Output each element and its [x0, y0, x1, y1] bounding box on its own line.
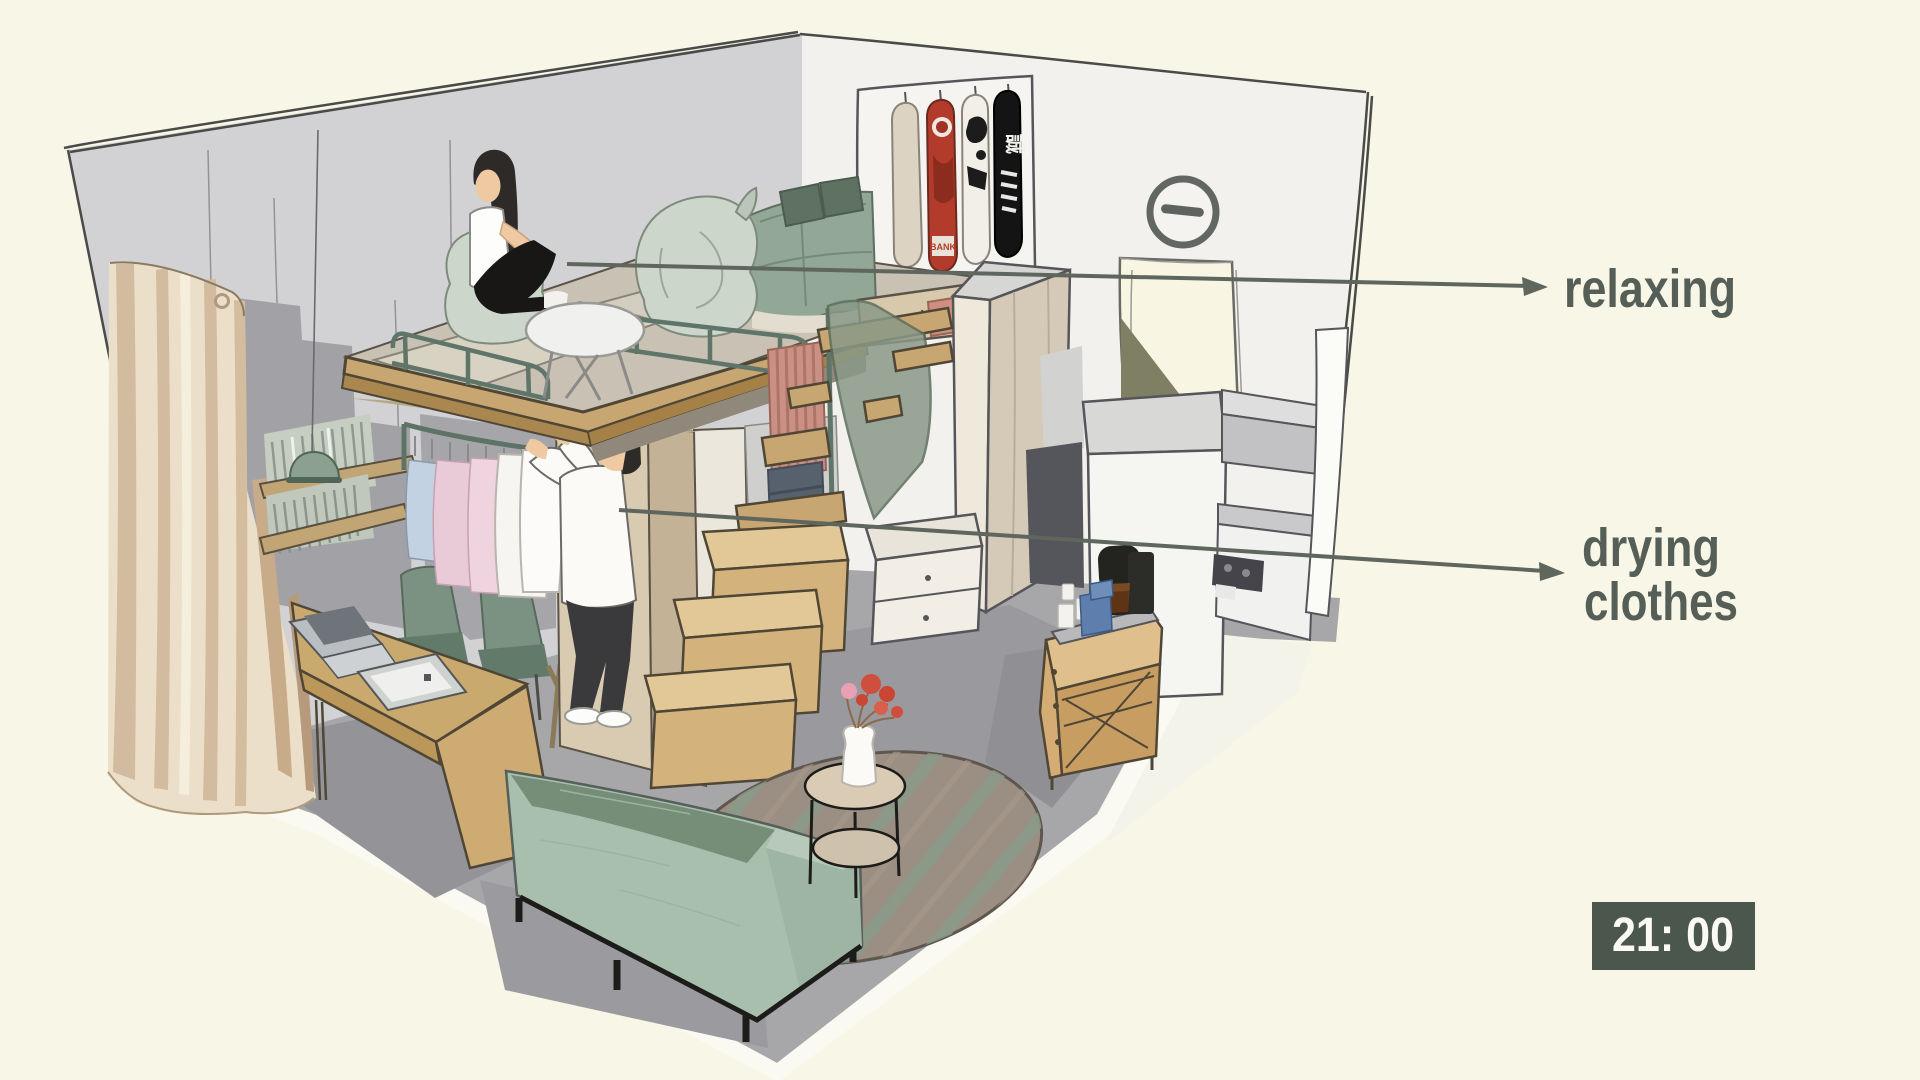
svg-text:clothes: clothes [1584, 572, 1738, 632]
svg-text:BANK: BANK [930, 242, 956, 252]
svg-text:21: 00: 21: 00 [1612, 909, 1734, 962]
svg-text:relaxing: relaxing [1564, 259, 1736, 319]
svg-text:誠: 誠 [1003, 134, 1027, 156]
svg-text:drying: drying [1582, 518, 1720, 578]
